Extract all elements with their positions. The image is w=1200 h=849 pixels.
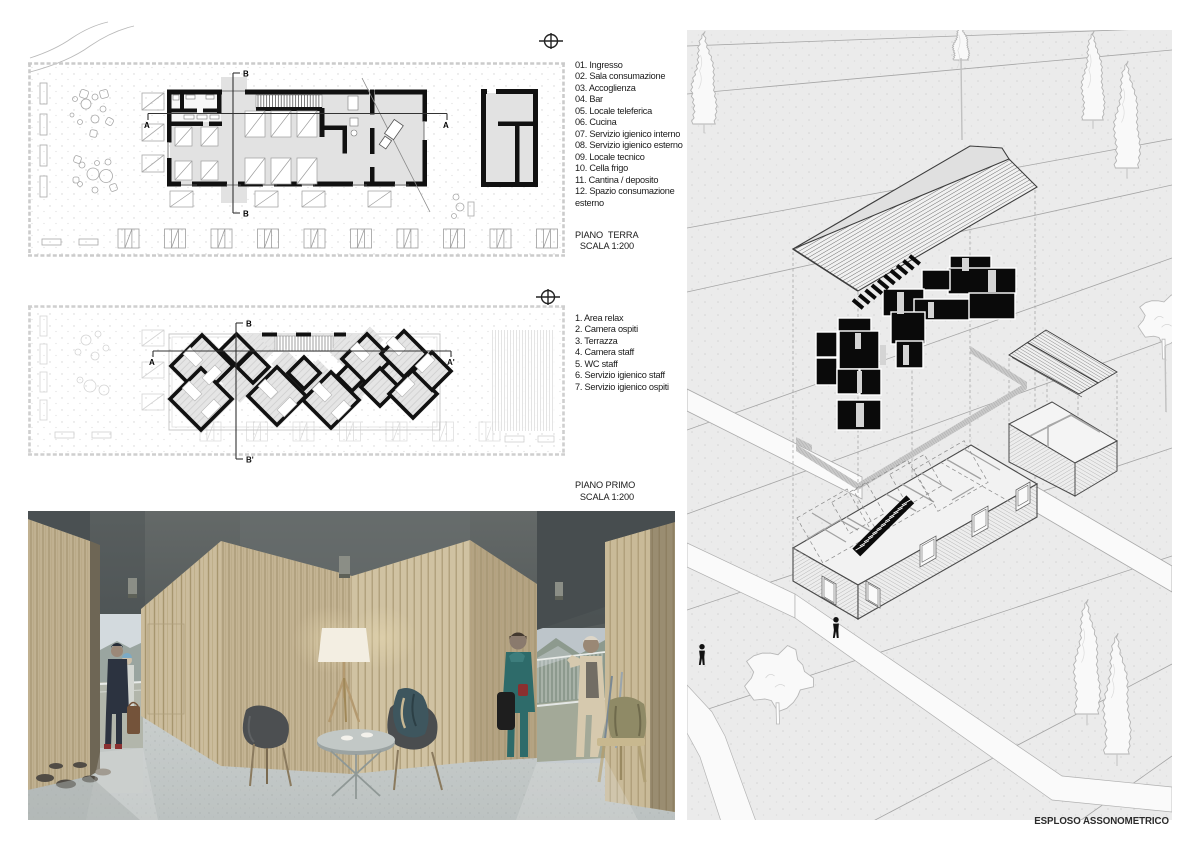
- svg-text:B: B: [246, 320, 252, 329]
- svg-text:B: B: [243, 210, 249, 219]
- svg-text:B': B': [246, 456, 254, 465]
- svg-text:B: B: [243, 70, 249, 79]
- svg-text:A: A: [149, 358, 155, 367]
- svg-text:A: A: [443, 121, 449, 130]
- svg-text:A: A: [144, 121, 150, 130]
- svg-text:A': A': [447, 358, 455, 367]
